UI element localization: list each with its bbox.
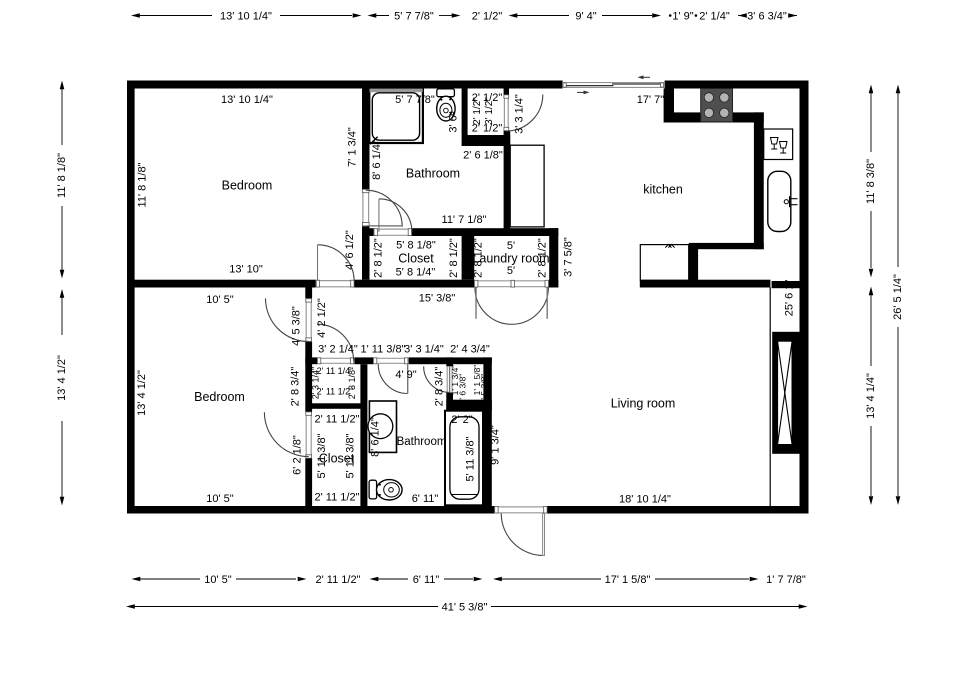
svg-text:5' 11 3/8": 5' 11 3/8" [344,433,356,478]
svg-text:13' 10": 13' 10" [229,263,263,275]
svg-text:13' 4 1/4": 13' 4 1/4" [865,373,877,419]
svg-text:17' 7": 17' 7" [637,94,665,106]
svg-text:1' 9": 1' 9" [672,10,693,22]
svg-text:2' 1/4": 2' 1/4" [699,10,730,22]
svg-text:9' 4": 9' 4" [575,10,596,22]
svg-text:11' 8 1/8": 11' 8 1/8" [136,162,148,207]
svg-text:5': 5' [507,265,515,277]
svg-text:5' 7 7/8": 5' 7 7/8" [395,94,435,106]
svg-text:2' 8 3/4": 2' 8 3/4" [289,367,301,407]
svg-text:15' 3/8": 15' 3/8" [419,292,456,304]
svg-text:17' 1 5/8": 17' 1 5/8" [605,574,651,586]
svg-text:2' 1/2": 2' 1/2" [472,122,503,134]
svg-text:25' 6 1": 25' 6 1" [783,280,795,317]
svg-text:13' 4 1/2": 13' 4 1/2" [56,355,68,401]
svg-text:10' 5": 10' 5" [206,493,234,505]
svg-text:3' 6 3/4": 3' 6 3/4" [747,10,787,22]
svg-text:3' 1/2": 3' 1/2" [484,97,495,125]
svg-text:6' 11": 6' 11" [412,493,439,505]
svg-text:2' 1/2": 2' 1/2" [472,97,483,125]
svg-text:4' 9": 4' 9" [395,369,416,381]
svg-text:11' 7 1/8": 11' 7 1/8" [442,214,487,226]
svg-text:26' 5 1/4": 26' 5 1/4" [892,274,904,320]
svg-text:13' 10 1/4": 13' 10 1/4" [220,10,272,22]
svg-text:5' 11 3/8": 5' 11 3/8" [316,433,328,478]
svg-text:10' 5": 10' 5" [204,574,232,586]
svg-text:3' 2 1/4": 3' 2 1/4" [318,343,358,355]
svg-text:11' 8 1/8": 11' 8 1/8" [56,153,68,198]
svg-text:4' 5 3/8": 4' 5 3/8" [290,306,302,346]
svg-text:41' 5 3/8": 41' 5 3/8" [442,601,488,613]
svg-text:9' 1 3/4": 9' 1 3/4" [489,425,501,465]
svg-text:3' 3 1/4": 3' 3 1/4" [404,343,444,355]
svg-text:Bathroom: Bathroom [406,166,460,180]
svg-text:5' 7 7/8": 5' 7 7/8" [394,10,434,22]
svg-text:6' 2 1/8": 6' 2 1/8" [291,435,303,475]
svg-text:2' 2": 2' 2" [451,414,472,426]
svg-text:kitchen: kitchen [643,182,683,196]
svg-text:5' 8 1/8": 5' 8 1/8" [396,239,436,251]
svg-text:Bedroom: Bedroom [222,178,273,192]
svg-text:Bedroom: Bedroom [194,390,245,404]
svg-text:10' 5": 10' 5" [206,294,234,306]
svg-text:8' 6 1/4": 8' 6 1/4" [369,417,381,457]
svg-text:2' 8 1/2": 2' 8 1/2" [536,238,548,278]
svg-text:1' 11 3/8": 1' 11 3/8" [361,343,406,355]
svg-text:2' 8 3/4": 2' 8 3/4" [433,367,445,407]
svg-text:2' 8 1/2": 2' 8 1/2" [372,238,384,278]
svg-text:Closet: Closet [398,251,434,265]
svg-text:1' 7 7/8": 1' 7 7/8" [766,574,806,586]
svg-text:2' 3 1/8": 2' 3 1/8" [347,367,357,399]
svg-text:5': 5' [507,240,515,252]
svg-text:13' 4 1/2": 13' 4 1/2" [136,370,148,416]
svg-text:5' 11 3/8": 5' 11 3/8" [464,436,476,481]
svg-text:2' 11 1/2": 2' 11 1/2" [315,413,360,425]
svg-text:3' 6": 3' 6" [447,111,459,132]
svg-text:6' 11": 6' 11" [413,574,440,586]
svg-text:2' 8 1/2": 2' 8 1/2" [448,238,460,278]
svg-text:2' 1/2": 2' 1/2" [472,10,503,22]
svg-text:3' 7 5/8": 3' 7 5/8" [562,237,574,277]
svg-text:3' 3 1/4": 3' 3 1/4" [513,94,525,134]
svg-text:7' 1 3/4": 7' 1 3/4" [346,127,358,167]
svg-text:2' 5 3/8": 2' 5 3/8" [479,374,489,405]
svg-text:2' 4 3/4": 2' 4 3/4" [450,343,490,355]
svg-text:4' 2 1/2": 4' 2 1/2" [316,298,328,338]
svg-text:4' 6 1/2": 4' 6 1/2" [344,230,356,270]
svg-text:Living room: Living room [611,396,676,410]
svg-text:8' 6 1/4": 8' 6 1/4" [371,140,383,180]
svg-text:5' 8 1/4": 5' 8 1/4" [396,266,436,278]
svg-text:2' 6 1/8": 2' 6 1/8" [463,149,503,161]
svg-text:13' 10 1/4": 13' 10 1/4" [221,94,273,106]
svg-text:18' 10 1/4": 18' 10 1/4" [619,493,671,505]
svg-text:2' 11 1/2": 2' 11 1/2" [315,491,360,503]
svg-text:2' 6 3/8": 2' 6 3/8" [458,374,468,405]
svg-text:2' 11 1/2": 2' 11 1/2" [316,574,361,586]
svg-text:Bathroom: Bathroom [397,436,447,448]
svg-text:2' 8 1/2": 2' 8 1/2" [472,238,484,278]
svg-text:11' 8 3/8": 11' 8 3/8" [865,159,877,204]
